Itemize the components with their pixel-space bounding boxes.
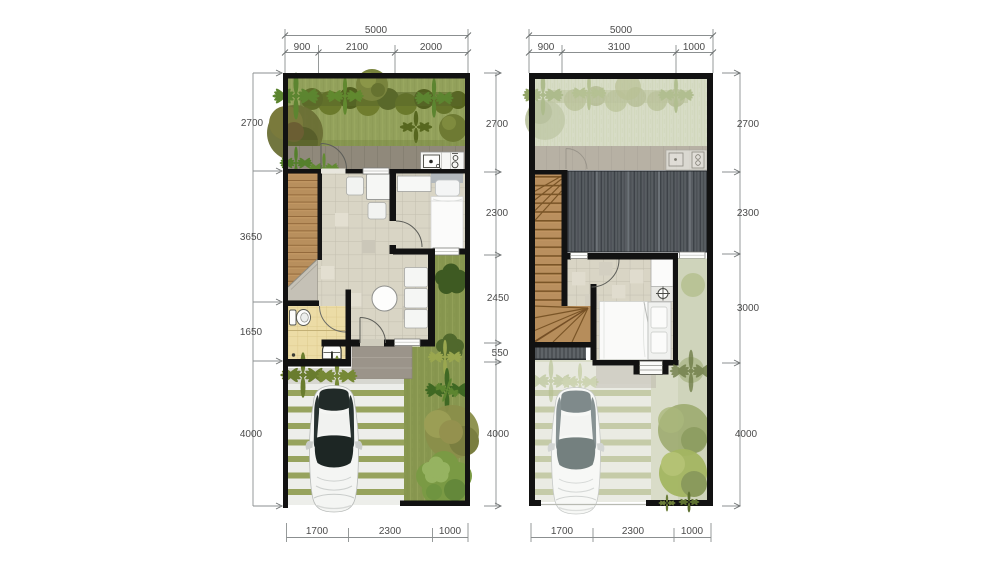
svg-text:2300: 2300 bbox=[737, 208, 760, 219]
svg-text:4000: 4000 bbox=[735, 429, 758, 440]
svg-text:900: 900 bbox=[294, 42, 311, 53]
svg-text:4000: 4000 bbox=[240, 429, 263, 440]
svg-text:550: 550 bbox=[492, 348, 509, 359]
svg-text:2300: 2300 bbox=[379, 526, 402, 537]
svg-text:1700: 1700 bbox=[551, 526, 574, 537]
svg-text:2450: 2450 bbox=[487, 293, 510, 304]
svg-text:5000: 5000 bbox=[610, 25, 633, 36]
svg-text:3000: 3000 bbox=[737, 303, 760, 314]
svg-text:2300: 2300 bbox=[622, 526, 645, 537]
svg-text:2700: 2700 bbox=[241, 118, 264, 129]
svg-text:4000: 4000 bbox=[487, 429, 510, 440]
svg-text:5000: 5000 bbox=[365, 25, 388, 36]
svg-text:3650: 3650 bbox=[240, 232, 263, 243]
svg-text:2700: 2700 bbox=[486, 119, 509, 130]
svg-text:1700: 1700 bbox=[306, 526, 329, 537]
svg-text:1000: 1000 bbox=[683, 42, 706, 53]
svg-text:3100: 3100 bbox=[608, 42, 631, 53]
svg-text:2000: 2000 bbox=[420, 42, 443, 53]
svg-text:2700: 2700 bbox=[737, 119, 760, 130]
svg-text:2300: 2300 bbox=[486, 208, 509, 219]
svg-text:1650: 1650 bbox=[240, 327, 263, 338]
svg-text:900: 900 bbox=[538, 42, 555, 53]
svg-text:2100: 2100 bbox=[346, 42, 369, 53]
svg-text:1000: 1000 bbox=[681, 526, 704, 537]
svg-text:1000: 1000 bbox=[439, 526, 462, 537]
